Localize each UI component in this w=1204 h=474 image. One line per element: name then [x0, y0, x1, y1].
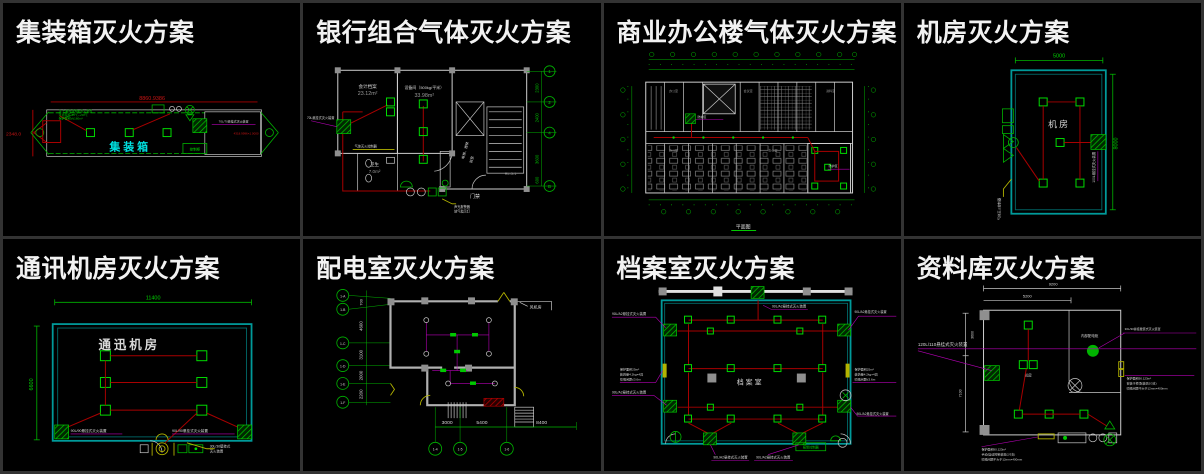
panel-title: 商业办公楼气体灭火方案: [617, 13, 898, 49]
plan-label: 平面图: [735, 225, 750, 231]
room-area: 23.12m²: [358, 91, 378, 97]
controller-note: 气体灭火控制器: [355, 143, 378, 148]
room-label: 机房: [1048, 119, 1070, 130]
room-labels: 会计档案 23.12m² 设备间（500kg/平米） 33.98m² 卫生 7.…: [358, 83, 517, 200]
dim: 2400: [535, 112, 540, 122]
suspended-devices: 内部配电柜: [984, 332, 1098, 380]
dim: 8400: [536, 420, 547, 426]
door-label: 门禁: [470, 193, 480, 200]
panel-title: 银行组合气体灭火方案: [316, 13, 571, 49]
equipment-row: [152, 105, 207, 133]
door-top: [498, 292, 510, 301]
panel-title: 配电室灭火方案: [316, 249, 495, 285]
dim: 3600: [970, 331, 974, 339]
walls: 风机房: [388, 292, 552, 405]
dim: 2200: [359, 388, 364, 398]
room-name: 会议室: [743, 88, 752, 93]
device-note: 灭火装置: [210, 448, 224, 453]
spec-line: 保护面积90.123m²: [1126, 375, 1150, 380]
device-label: 90L/A2悬挂式灭火装置: [756, 454, 791, 459]
device-label: 90L/A2悬挂式灭火装置: [611, 311, 646, 316]
gas-cylinder-hatch: [193, 119, 207, 133]
room-name: 办公室: [669, 88, 678, 93]
meeting-area-texture: [760, 86, 812, 130]
panel-title: 资料库灭火方案: [917, 249, 1096, 285]
panel-title: 机房灭火方案: [917, 13, 1070, 49]
panel-archive-room-plan[interactable]: 档案室灭火方案: [604, 239, 901, 472]
dim: 7100: [958, 389, 962, 397]
zone-label: 防护区: [697, 114, 706, 119]
spec-line: 保护面积25m²: [854, 366, 873, 371]
spec-line: 装药量4.2kg×4具: [619, 371, 642, 376]
controller-note: 气体灭火控制器: [996, 179, 1011, 220]
room-area: 7.0m²: [369, 169, 381, 174]
panel-title: 集装箱灭火方案: [16, 13, 195, 49]
device-label: 90L/A2悬挂式灭火装置: [713, 454, 748, 459]
device-label: 30L/30悬挂壁装式灭火装置: [1124, 326, 1160, 331]
device-label: 70L/70悬挂式灭火装置: [219, 119, 249, 124]
alarm-note: 声光报警器: [454, 204, 471, 209]
axis-bubble: 2: [549, 100, 552, 105]
piping-and-nozzles: [337, 98, 448, 196]
dim: 3100: [359, 349, 364, 359]
annotations: 70L悬挂式灭火装置 气体灭火控制器 声光报警器 放气指示灯: [307, 115, 471, 214]
left-axis: 1-A 1-B 1-C 1-D 1-E 1-F 700 4600 3100 20…: [337, 289, 391, 408]
panel-bank-gas-plan[interactable]: 银行组合气体灭火方案: [303, 3, 600, 236]
spec-line: 手动/自动控制装置(2/3支): [981, 451, 1015, 456]
cad-thumbnail-grid: 集装箱灭火方案 8860.9386 2348.0 4318.9996×1.000…: [0, 0, 1204, 474]
spec-line: 保护面积25m²: [619, 366, 638, 371]
control-box-label: 控制柜: [190, 146, 201, 151]
dim: 4600: [359, 320, 364, 330]
cylinder-hatch-red: [484, 398, 504, 406]
room-label: 集装箱: [108, 139, 151, 153]
cabinet-label: 内部配电柜: [1081, 332, 1099, 337]
dim: 5400: [477, 420, 488, 426]
dimensions: 5000 8000: [1015, 53, 1119, 209]
lobby-label: 前室: [468, 155, 475, 164]
device-label: 90L/90悬挂式灭火装置: [172, 427, 208, 432]
plan-caption: 平面图: [731, 225, 756, 231]
dim: 700: [359, 298, 364, 305]
dim-left: 6600: [29, 378, 35, 390]
dim-top: 11400: [146, 295, 161, 301]
room-name: 会计档案: [359, 83, 378, 90]
axis-bubble: 4: [549, 131, 552, 136]
dim: 2000: [359, 370, 364, 380]
bottom-devices: [1058, 421, 1117, 446]
dimensions: 9200 5200 3600 7100: [958, 281, 1120, 431]
fixture-texture: [647, 86, 662, 130]
cylinder-hatch-area: 100L悬挂式灭火装置: [1091, 135, 1106, 183]
room-name: 办公室: [669, 147, 678, 152]
fan-room-label: 风机房: [530, 304, 542, 309]
axis-bubble: 1-4: [433, 447, 438, 451]
device-label: 90L/90悬挂式灭火装置: [71, 427, 107, 432]
stair-label: RL-5-1: [505, 172, 516, 176]
piping-and-nozzles: [663, 300, 850, 444]
alarm-note: 放气指示灯: [454, 209, 471, 214]
panel-office-gas-plan[interactable]: 商业办公楼气体灭火方案: [604, 3, 901, 236]
spec-line: 保护面积90.123m²: [981, 446, 1005, 451]
left-note: 注:七氟丙烷预制灭火装置 环境温度-10℃~+50℃ 保护容积V≤160m³: [59, 108, 93, 121]
zone-label: 防护区: [828, 163, 837, 168]
nozzles-and-pipes: [1016, 98, 1091, 187]
device-note: 30L/30壁挂式: [210, 443, 231, 448]
dim: 5200: [1023, 293, 1033, 298]
axis-bubble: 1-6: [505, 447, 510, 451]
dim-top: 8860.9386: [139, 96, 165, 102]
device-label: 100L悬挂式灭火装置: [1091, 151, 1096, 183]
device-label: 90L/A2悬挂式灭火装置: [856, 411, 888, 416]
axis-bubble: B: [548, 184, 551, 189]
device-label: 90L/A2悬挂式灭火装置: [772, 303, 807, 308]
panel-data-library-plan[interactable]: 资料库灭火方案 9200 5200 3600 7100 内部配电柜: [904, 239, 1201, 472]
spec-line: 装药量4.2kg×4具: [854, 371, 877, 376]
panel-server-room-plan[interactable]: 机房灭火方案 5000 8000 100L悬挂式灭火装置: [904, 3, 1201, 236]
controller-label: 气体灭火控制器: [996, 197, 1001, 220]
axis-bubble: 1-B: [340, 308, 346, 312]
device-note: 70L悬挂式灭火装置: [307, 115, 334, 120]
axis-bubble: 1-D: [340, 364, 346, 368]
piping: [424, 317, 504, 406]
panel-title: 通讯机房灭火方案: [16, 249, 220, 285]
room-name: 卫生: [370, 161, 379, 167]
panel-comm-room-plan[interactable]: 通讯机房灭火方案 11400 6600: [3, 239, 300, 472]
dim: 3000: [442, 420, 453, 426]
spec-line: 喷嘴间距≤3.6m: [854, 376, 875, 381]
axis-bubble: 1-C: [340, 341, 346, 345]
panel-container-plan[interactable]: 集装箱灭火方案 8860.9386 2348.0 4318.9996×1.000…: [3, 3, 300, 236]
dim-left: 2348.0: [6, 132, 21, 138]
room-label: 通迅机房: [98, 336, 160, 351]
axis-bubble: 1-A: [340, 294, 346, 298]
lobby-label: 电梯、楼梯: [460, 141, 470, 160]
axis-grid: 1 2 4 B 2300 2400 3600 600: [527, 66, 557, 192]
spec-line: 安装于柜顶(装药2/3支): [1126, 380, 1156, 385]
device-label: 90L/A2悬挂式灭火装置: [854, 309, 886, 314]
cylinder-hatch: [337, 120, 351, 134]
dim: 600: [535, 176, 540, 184]
room-walls: [979, 310, 1120, 435]
dim-top: 5000: [1053, 53, 1065, 59]
top-wall: [658, 286, 852, 298]
room-name: 办公室: [768, 147, 777, 152]
axis-bubble: 1: [549, 69, 552, 74]
dim-right: 4318.9996×1.0000: [234, 132, 259, 136]
panel-box-label: 报警控制器: [802, 444, 819, 449]
spec-line: 喷嘴间距不大于12mm×400mm: [981, 456, 1022, 461]
dim: 2300: [535, 83, 540, 93]
wall-devices: [1002, 109, 1018, 162]
room-name: 资料室: [826, 88, 835, 93]
wall-strips: [1038, 361, 1123, 438]
device-label: 90L/A2悬挂式灭火装置: [611, 389, 646, 394]
device-label: 120L/110悬挂式灭火装置: [918, 340, 968, 347]
dim: 3600: [535, 154, 540, 164]
axis-bubble: 1-5: [458, 447, 463, 451]
panel-power-room-plan[interactable]: 配电室灭火方案 1-A 1-B 1-C 1-D 1-E 1-F 700 4600…: [303, 239, 600, 472]
room-label: 档案室: [736, 377, 763, 386]
axis-bubble: 1-F: [340, 401, 345, 405]
room-name: 设备间（500kg/平米）: [405, 85, 445, 90]
panel-title: 档案室灭火方案: [617, 249, 796, 285]
dim-right: 8000: [1113, 137, 1119, 149]
axis-bubble: 1-E: [340, 382, 346, 386]
spec-line: 喷嘴间距不大于12mm×400mm: [1126, 385, 1167, 390]
note-line: 保护容积V≤160m³: [59, 116, 83, 121]
spec-line: 喷嘴间距≤3.6m: [619, 376, 640, 381]
room-area: 33.98m²: [415, 93, 435, 99]
